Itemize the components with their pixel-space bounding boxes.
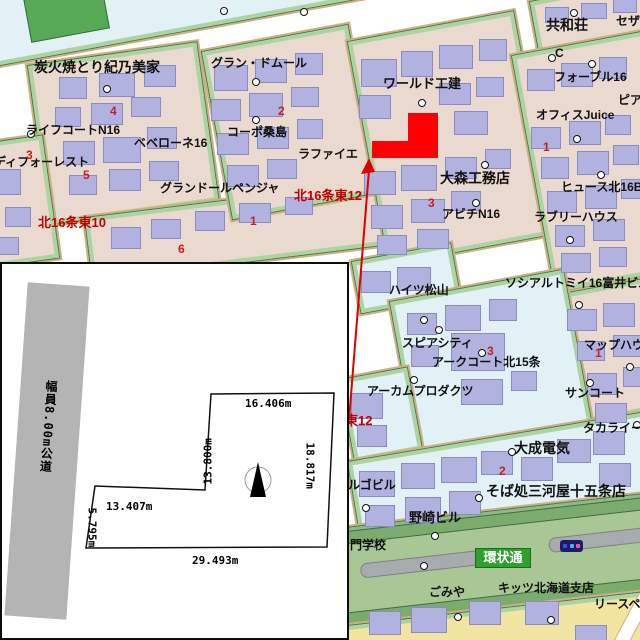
building	[490, 300, 516, 320]
building	[486, 150, 510, 168]
street-label: 東12	[345, 410, 372, 429]
street-label: 北16条東12	[294, 185, 362, 204]
place-label: グランドールペンジャ	[160, 182, 279, 195]
poi-marker	[626, 363, 634, 371]
block-number: 3	[487, 344, 494, 358]
block-number: 2	[499, 464, 506, 478]
place-label: リースペー	[594, 598, 640, 611]
building	[446, 306, 480, 330]
building	[6, 208, 30, 226]
place-label: ごみや	[429, 586, 465, 599]
parcel-outline	[2, 264, 347, 638]
poi-marker	[420, 316, 428, 324]
block-number: 3	[26, 148, 33, 162]
building	[365, 172, 395, 194]
place-label: キッツ北海道支店	[498, 582, 594, 595]
building	[402, 52, 432, 76]
building	[562, 254, 590, 272]
building	[150, 162, 178, 180]
place-label: ソシアルトミイ16富井ビル	[505, 277, 640, 290]
measure-upper-left: 13.800m	[202, 425, 215, 485]
building	[372, 206, 402, 228]
place-label: オフィスJuice	[536, 109, 614, 122]
building	[482, 452, 512, 474]
building	[548, 192, 576, 212]
building	[212, 100, 240, 120]
measure-step: 13.407m	[106, 500, 152, 513]
building	[360, 96, 390, 118]
place-label: ラファイエ	[298, 148, 358, 161]
building	[358, 426, 386, 446]
building	[152, 220, 180, 238]
building	[600, 248, 626, 266]
building	[594, 432, 624, 454]
building	[402, 166, 436, 190]
street-label: 北16条東10	[38, 212, 106, 231]
subject-property-highlight[interactable]	[372, 141, 438, 158]
place-label: ベベローネ16	[134, 137, 207, 150]
poi-marker	[481, 161, 489, 169]
poi-marker	[597, 171, 605, 179]
building	[132, 98, 160, 116]
place-label: マップハウス1	[584, 339, 640, 352]
block-number: 6	[178, 242, 185, 256]
building	[542, 158, 568, 178]
block-number: 1	[250, 214, 257, 228]
poi-marker	[575, 301, 583, 309]
survey-inset: 幅員8.00m公道 16.406m 13.800m 18.817m 13.407…	[0, 262, 349, 640]
place-label: C	[555, 47, 564, 60]
building	[440, 46, 472, 68]
place-label: セザ	[616, 15, 640, 28]
poi-marker	[252, 116, 260, 124]
block-number: 2	[278, 104, 285, 118]
building	[576, 626, 606, 640]
place-label: アビチN16	[442, 208, 500, 221]
place-label: 共和荘	[546, 18, 588, 33]
poi-marker	[472, 199, 480, 207]
poi-marker	[570, 9, 578, 17]
poi-marker	[588, 60, 596, 68]
building	[614, 0, 636, 12]
building	[0, 170, 20, 194]
building	[268, 160, 296, 178]
poi-marker	[431, 532, 439, 540]
building	[477, 78, 503, 96]
building	[292, 88, 318, 106]
place-label: そば処三河屋十五条店	[486, 484, 626, 499]
building	[298, 120, 322, 138]
building	[470, 602, 500, 624]
place-label: フォーブル16	[554, 71, 627, 84]
poi-marker	[362, 504, 370, 512]
poi-marker	[435, 326, 443, 334]
place-label: タカライーストン	[583, 422, 640, 435]
building	[528, 70, 554, 90]
measure-bottom: 29.493m	[192, 554, 238, 567]
building	[418, 230, 448, 248]
poi-marker	[420, 562, 428, 570]
building	[455, 112, 487, 134]
building	[614, 146, 638, 164]
place-label: ライフコートN16	[26, 124, 120, 137]
place-label: 野崎ビル	[409, 511, 461, 525]
poi-marker	[475, 494, 483, 502]
poi-marker	[566, 236, 574, 244]
building	[604, 304, 634, 326]
place-label: ディフォーレスト	[0, 156, 89, 169]
block-number: 4	[110, 104, 117, 118]
place-label: ラブリーハウス	[534, 211, 618, 224]
building	[596, 404, 626, 422]
building	[568, 310, 596, 330]
building	[370, 612, 400, 634]
poi-marker	[220, 7, 228, 15]
building	[624, 368, 640, 386]
place-label: ヒュース北16B	[561, 181, 640, 194]
measure-lower-left: 5.795m	[86, 508, 99, 560]
place-label: 炭火焼とり紀乃美家	[34, 60, 160, 75]
building	[92, 104, 122, 124]
building	[110, 170, 140, 190]
place-label: ピア	[618, 94, 640, 107]
building	[512, 372, 536, 390]
building	[378, 236, 406, 254]
measure-right: 18.817m	[304, 443, 317, 503]
building	[366, 506, 394, 526]
block-number: 1	[595, 346, 602, 360]
measure-top: 16.406m	[245, 397, 291, 410]
place-label: ルゴビル	[348, 479, 396, 492]
building	[112, 228, 140, 248]
traffic-signal-icon	[560, 540, 583, 552]
road-name-badge: 環状通	[476, 549, 530, 567]
place-label: 門学校	[350, 539, 386, 552]
building	[412, 608, 446, 632]
block-number: 3	[428, 196, 435, 210]
place-label: コーポ桑島	[227, 126, 287, 139]
building	[60, 78, 86, 98]
block-number: 1	[543, 140, 550, 154]
map-viewport[interactable]: 炭火焼とり紀乃美家 ライフコートN16 ベベローネ16 ディフォーレスト グラン…	[0, 0, 640, 640]
poi-marker	[252, 78, 260, 86]
place-label: サンコート	[565, 387, 625, 400]
building	[402, 464, 434, 488]
place-label: スピアシティ	[402, 337, 473, 350]
building	[196, 212, 224, 230]
building	[442, 458, 476, 482]
building	[522, 458, 552, 480]
building	[480, 40, 506, 60]
poi-marker	[547, 616, 555, 624]
subject-property-highlight[interactable]	[408, 113, 438, 143]
poi-marker	[410, 376, 418, 384]
building	[578, 152, 608, 174]
poi-marker	[103, 85, 111, 93]
building	[362, 272, 390, 292]
building	[582, 4, 606, 18]
park-green	[24, 0, 108, 42]
poi-marker	[300, 8, 308, 16]
place-label: グラン・ドムール	[211, 57, 307, 70]
building	[0, 238, 18, 254]
block-number: 5	[83, 168, 90, 182]
place-label: ワールド工建	[383, 77, 461, 91]
poi-marker	[573, 135, 581, 143]
poi-marker	[454, 613, 462, 621]
place-label: ハイツ松山	[389, 284, 449, 297]
place-label: アーカムプロダクツ	[367, 385, 474, 398]
poi-marker	[418, 99, 426, 107]
place-label: 大森工務店	[440, 171, 510, 186]
place-label: 大成電気	[514, 441, 570, 456]
